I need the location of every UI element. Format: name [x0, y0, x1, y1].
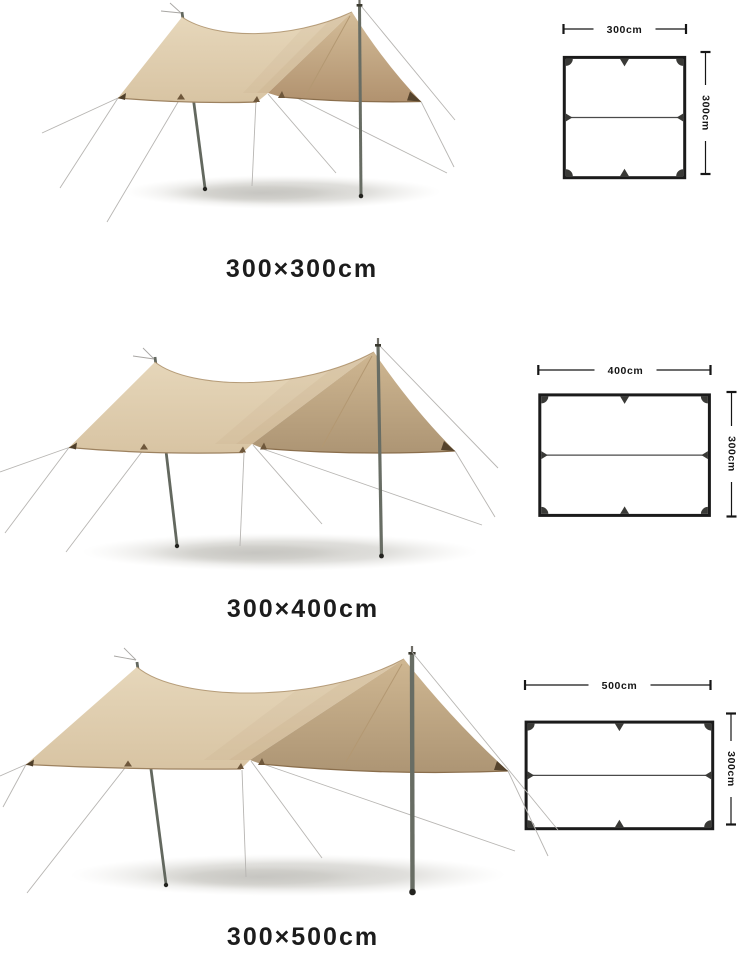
svg-text:300cm: 300cm — [607, 24, 643, 36]
svg-text:400cm: 400cm — [608, 365, 644, 377]
svg-text:300cm: 300cm — [700, 95, 712, 131]
svg-text:300×400cm: 300×400cm — [227, 595, 379, 623]
svg-text:300cm: 300cm — [725, 751, 737, 787]
svg-text:300×300cm: 300×300cm — [226, 255, 378, 283]
svg-text:300cm: 300cm — [726, 436, 738, 472]
svg-text:500cm: 500cm — [602, 680, 638, 692]
svg-text:300×500cm: 300×500cm — [227, 923, 379, 951]
